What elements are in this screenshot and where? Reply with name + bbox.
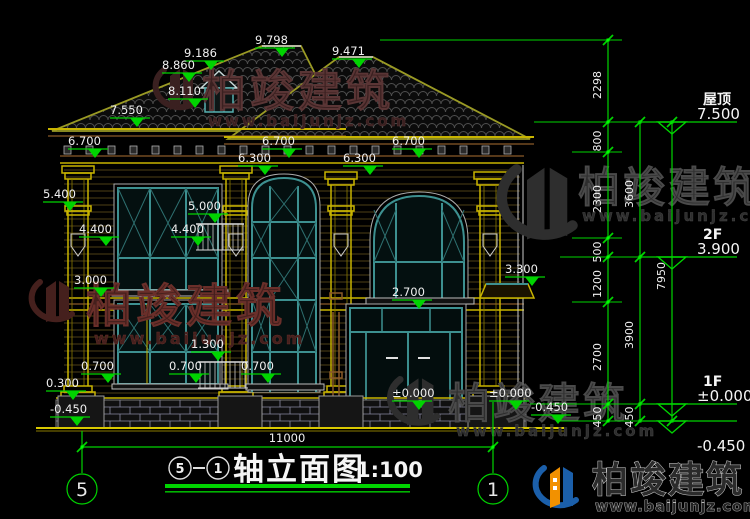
axis-number: 5: [76, 479, 88, 501]
elevation-value: 6.700: [68, 134, 101, 148]
chain-dimension-label: 2298: [591, 71, 604, 99]
title-axis-to: 1: [213, 462, 222, 477]
elevation-value: ±0.000: [489, 386, 532, 400]
chain-dimension-label: 450: [623, 407, 636, 428]
overall-width-dimension: 11000: [269, 431, 306, 445]
chain-dimension-label: 2300: [591, 185, 604, 213]
elevation-value: 5.000: [188, 199, 221, 213]
elevation-value: 3.300: [505, 262, 538, 276]
dentil: [108, 146, 115, 154]
elevation-value: 5.400: [43, 187, 76, 201]
dentil: [504, 146, 511, 154]
node-mark: [607, 403, 610, 406]
dentil: [438, 146, 445, 154]
elevation-value: 8.860: [162, 58, 195, 72]
footer-brand-url: www.baijunjz.com: [595, 499, 750, 515]
dentil: [174, 146, 181, 154]
elevation-value: 4.400: [171, 222, 204, 236]
level-value: ±0.000: [697, 387, 750, 405]
chain-dimension-label: 7950: [655, 262, 668, 290]
elevation-value: 2.700: [392, 285, 425, 299]
title-underline-thin: [165, 491, 410, 493]
elevation-drawing: 柏竣建筑 www.baijunjz.com 柏竣建筑 www.baijunjz.…: [0, 0, 750, 519]
level-value: 3.900: [697, 240, 740, 258]
elevation-value: 0.300: [46, 376, 79, 390]
elevation-value: 0.700: [169, 359, 202, 373]
elevation-value: 0.700: [81, 359, 114, 373]
elevation-value: -0.450: [50, 402, 87, 416]
watermark-url: www.baijunjz.com: [208, 112, 409, 130]
title-axis-from: 5: [175, 462, 184, 477]
dentil: [130, 146, 137, 154]
drawing-title: 轴立面图: [233, 452, 365, 488]
dentil: [328, 146, 335, 154]
watermark-brand: 柏竣建筑: [202, 66, 394, 117]
chain-dimension-label: 800: [591, 131, 604, 152]
axis-number: 1: [487, 479, 499, 501]
watermark-url: www.baijunjz.com: [582, 207, 750, 225]
elevation-value: 7.550: [110, 103, 143, 117]
elevation-value: -0.450: [531, 400, 568, 414]
node-mark: [607, 420, 610, 423]
elevation-value: 4.400: [79, 222, 112, 236]
title-underline-thick: [165, 484, 410, 488]
dentil: [306, 146, 313, 154]
level-value: 7.500: [697, 105, 740, 123]
side-canopy: [480, 284, 534, 298]
node-mark: [607, 237, 610, 240]
chain-dimension-label: 2700: [591, 343, 604, 371]
elevation-value: 6.300: [343, 151, 376, 165]
elevation-value: 6.700: [392, 134, 425, 148]
chain-dimension-label: 1200: [591, 270, 604, 298]
dentil: [196, 146, 203, 154]
watermark-brand: 柏竣建筑: [86, 279, 286, 333]
node-mark: [607, 256, 610, 259]
level-value: -0.450: [697, 437, 745, 455]
chain-dimension-label: 3600: [623, 180, 636, 208]
chain-dimension-label: 500: [591, 242, 604, 263]
elevation-value: 6.700: [262, 134, 295, 148]
dentil: [460, 146, 467, 154]
elevation-value: 1.300: [191, 337, 224, 351]
dentil: [482, 146, 489, 154]
elevation-value: 9.798: [255, 33, 288, 47]
dentil: [218, 146, 225, 154]
node-mark: [607, 151, 610, 154]
dentil: [152, 146, 159, 154]
elevation-value: 8.110: [168, 84, 201, 98]
node-mark: [607, 39, 610, 42]
footer-brand-name: 柏竣建筑: [592, 460, 744, 501]
node-mark: [607, 121, 610, 124]
node-mark: [607, 301, 610, 304]
chain-dimension-label: 3900: [623, 321, 636, 349]
chain-dimension-label: 450: [591, 407, 604, 428]
elevation-value: 9.471: [332, 44, 365, 58]
drawing-scale: 1:100: [356, 458, 423, 482]
elevation-value: 6.300: [238, 151, 271, 165]
elevation-value: 3.000: [74, 273, 107, 287]
elevation-value: ±0.000: [392, 386, 435, 400]
elevation-value: 0.700: [241, 359, 274, 373]
